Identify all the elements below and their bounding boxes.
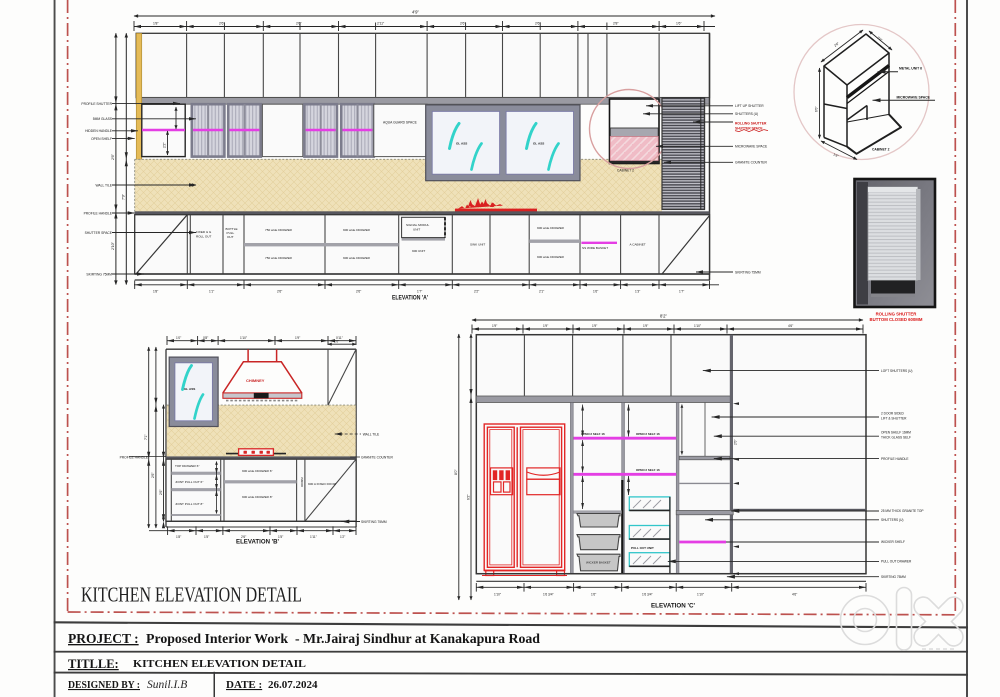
svg-text:WICKER SHELF: WICKER SHELF	[881, 540, 905, 544]
svg-text:WICKER BASKET: WICKER BASKET	[586, 561, 611, 565]
svg-text:GL ASS: GL ASS	[456, 142, 467, 146]
svg-text:SKIRTING 75MM: SKIRTING 75MM	[361, 520, 387, 524]
svg-text:JOINT PULL OUT 8": JOINT PULL OUT 8"	[175, 502, 203, 506]
svg-text:CABINET 2: CABINET 2	[872, 148, 890, 152]
svg-text:HIDDEN HANDLE: HIDDEN HANDLE	[85, 129, 113, 133]
svg-text:2'11": 2'11"	[377, 22, 385, 26]
svg-text:PULL OUT UNIT: PULL OUT UNIT	[631, 546, 654, 550]
svg-text:2'6": 2'6"	[219, 22, 225, 26]
svg-text:1'9": 1'9"	[592, 324, 597, 328]
svg-text:0'8": 0'8"	[203, 336, 208, 340]
svg-text:2'6": 2'6"	[535, 22, 541, 26]
svg-text:WALL TILE: WALL TILE	[95, 183, 112, 187]
svg-text:SIGNAL MODUL: SIGNAL MODUL	[406, 223, 430, 227]
svg-text:1'8": 1'8"	[153, 290, 158, 294]
svg-text:1'10": 1'10"	[694, 324, 701, 328]
svg-text:SKIRTING 75MM: SKIRTING 75MM	[881, 575, 906, 579]
svg-text:25 MM THICK GRANITE TOP: 25 MM THICK GRANITE TOP	[881, 509, 924, 513]
svg-text:1'9": 1'9"	[295, 336, 300, 340]
svg-text:1'10": 1'10"	[240, 336, 247, 340]
svg-text:SKIRTING 75MM: SKIRTING 75MM	[86, 272, 112, 276]
svg-text:AQUA GUARD SPACE: AQUA GUARD SPACE	[383, 121, 418, 125]
svg-text:SHUTTER SPACE: SHUTTER SPACE	[85, 231, 113, 235]
svg-text:2'8": 2'8"	[613, 22, 619, 26]
svg-text:ROLLING SHUTTER: ROLLING SHUTTER	[876, 312, 918, 317]
svg-text:Sunil.I.B: Sunil.I.B	[147, 679, 187, 691]
svg-text:1'10": 1'10"	[494, 592, 501, 596]
svg-text:900 A FIXED DOOR: 900 A FIXED DOOR	[308, 482, 337, 486]
svg-text:900 wide DRAWER 8": 900 wide DRAWER 8"	[242, 495, 273, 499]
svg-text:GRANITE COUNTER: GRANITE COUNTER	[735, 161, 767, 165]
svg-text:1'7": 1'7"	[679, 290, 684, 294]
svg-text:WALL TILE: WALL TILE	[363, 432, 380, 436]
svg-text:4'6": 4'6"	[792, 592, 797, 596]
svg-text:DESIGNED BY :: DESIGNED BY :	[68, 679, 140, 691]
svg-text:2'0": 2'0"	[334, 340, 339, 344]
svg-text:6'0": 6'0"	[815, 106, 819, 112]
svg-text:2'6": 2'6"	[277, 290, 282, 294]
svg-text:SHUTTER SPACE: SHUTTER SPACE	[735, 126, 763, 130]
svg-text:SHUTTERS (U): SHUTTERS (U)	[735, 112, 758, 116]
svg-text:GL ASS: GL ASS	[184, 387, 195, 391]
svg-text:TITLLE:: TITLLE:	[68, 657, 119, 671]
svg-text:1'6 3/4": 1'6 3/4"	[543, 592, 554, 596]
svg-text:2'1": 2'1"	[539, 290, 544, 294]
svg-text:A CABINET: A CABINET	[630, 243, 646, 247]
svg-text:ELEVATION 'C': ELEVATION 'C'	[651, 604, 696, 610]
svg-text:KITCHEN ELEVATION DETAIL: KITCHEN ELEVATION DETAIL	[81, 583, 302, 607]
svg-text:4'6": 4'6"	[788, 324, 793, 328]
svg-text:GRANITE COUNTER: GRANITE COUNTER	[361, 455, 393, 459]
svg-text:1'2": 1'2"	[340, 535, 345, 539]
svg-text:2'6": 2'6"	[241, 535, 246, 539]
svg-text:ROLLING SHUTTER: ROLLING SHUTTER	[735, 121, 767, 125]
svg-text:2'2": 2'2"	[163, 142, 167, 148]
svg-text:1'0": 1'0"	[176, 336, 181, 340]
svg-text:1'5": 1'5"	[204, 535, 209, 539]
svg-text:1'3": 1'3"	[635, 290, 640, 294]
svg-text:MICROWAVE SPACE: MICROWAVE SPACE	[735, 145, 768, 149]
svg-text:1'5": 1'5"	[278, 535, 283, 539]
svg-text:750 wide DRAWER: 750 wide DRAWER	[265, 256, 293, 260]
svg-text:26.07.2024: 26.07.2024	[268, 679, 318, 691]
svg-text:SHUTTERS (U): SHUTTERS (U)	[881, 518, 904, 522]
svg-text:1'1": 1'1"	[209, 290, 214, 294]
svg-text:2'6": 2'6"	[356, 290, 361, 294]
svg-text:7'1": 7'1"	[144, 434, 148, 440]
svg-text:2 DOOR SIDED: 2 DOOR SIDED	[881, 412, 905, 416]
svg-text:900 wide DRAWER: 900 wide DRAWER	[537, 255, 565, 259]
svg-text:1'10": 1'10"	[697, 592, 704, 596]
svg-text:900 wide DRAWER: 900 wide DRAWER	[343, 256, 371, 260]
svg-text:KITCHEN ELEVATION DETAIL: KITCHEN ELEVATION DETAIL	[133, 659, 306, 670]
svg-text:TOP DRAWER 6": TOP DRAWER 6"	[175, 464, 199, 468]
svg-text:1'8": 1'8"	[176, 535, 181, 539]
svg-text:2'6": 2'6"	[460, 22, 466, 26]
svg-text:ELEVATION 'B': ELEVATION 'B'	[236, 540, 280, 546]
svg-text:7'9": 7'9"	[122, 193, 126, 200]
svg-text:PROFILE SHUTTER: PROFILE SHUTTER	[81, 102, 112, 106]
svg-text:CHIMNEY: CHIMNEY	[246, 378, 265, 383]
svg-text:Proposed Interior Work - Mr.J: Proposed Interior Work - Mr.Jairaj Sindh…	[146, 631, 540, 646]
svg-text:OPEN 2 SELF 16: OPEN 2 SELF 16	[636, 468, 660, 472]
svg-text:METAL UNIT 6: METAL UNIT 6	[899, 67, 922, 71]
svg-text:4'9": 4'9"	[412, 10, 419, 15]
svg-text:FIXED & G: FIXED & G	[196, 230, 212, 234]
svg-text:MICROWAVE SPACE: MICROWAVE SPACE	[897, 96, 931, 100]
svg-text:5MM GLASS: 5MM GLASS	[93, 117, 113, 121]
svg-text:8'2": 8'2"	[660, 314, 667, 319]
svg-text:1'8": 1'8"	[153, 22, 159, 26]
svg-text:LIFT UP SHUTTER: LIFT UP SHUTTER	[735, 104, 764, 108]
svg-text:BUTTOM CLOSED 600MM: BUTTOM CLOSED 600MM	[870, 317, 923, 322]
svg-text:SINK UNIT: SINK UNIT	[470, 243, 485, 247]
svg-text:THICK GLASS SELF: THICK GLASS SELF	[881, 435, 911, 439]
svg-text:SS WIRE BASKET: SS WIRE BASKET	[582, 246, 608, 250]
svg-text:OPEN 2 SELF 16: OPEN 2 SELF 16	[636, 432, 660, 436]
svg-text:PROJECT :: PROJECT :	[68, 631, 139, 646]
svg-text:PROFILE HANDLE: PROFILE HANDLE	[881, 457, 908, 461]
svg-text:6'2": 6'2"	[466, 494, 470, 500]
svg-text:900MM: 900MM	[300, 477, 304, 487]
svg-text:1'6": 1'6"	[676, 22, 682, 26]
svg-text:UNIT: UNIT	[413, 228, 420, 232]
svg-text:1'11": 1'11"	[310, 535, 317, 539]
svg-text:1'7": 1'7"	[417, 290, 422, 294]
svg-text:2'6": 2'6"	[159, 489, 163, 495]
svg-text:DATE :: DATE :	[226, 679, 262, 691]
svg-text:2'2": 2'2"	[474, 290, 479, 294]
svg-text:1'6": 1'6"	[591, 592, 596, 596]
svg-text:2'6": 2'6"	[151, 472, 155, 478]
svg-text:SKIRTING 75MM: SKIRTING 75MM	[735, 270, 761, 274]
svg-text:GL ASS: GL ASS	[533, 142, 544, 146]
svg-text:PULL OUT DRAWER: PULL OUT DRAWER	[881, 560, 912, 564]
svg-text:OPEN 2 SELF 16: OPEN 2 SELF 16	[581, 432, 605, 436]
svg-text:ROLL OUT: ROLL OUT	[196, 235, 211, 239]
svg-text:900 wide DRAWER: 900 wide DRAWER	[343, 228, 371, 232]
svg-text:1'9": 1'9"	[643, 324, 648, 328]
svg-text:LOFT SHUTTERS (U): LOFT SHUTTERS (U)	[881, 369, 912, 373]
svg-text:1'9": 1'9"	[543, 324, 548, 328]
svg-text:2'10": 2'10"	[111, 241, 115, 250]
svg-text:750 wide DRAWER: 750 wide DRAWER	[265, 228, 293, 232]
svg-text:2'6": 2'6"	[833, 41, 840, 48]
svg-text:PROFILE HANDLE: PROFILE HANDLE	[84, 211, 113, 215]
svg-text:1'6": 1'6"	[833, 152, 840, 158]
svg-text:2'0": 2'0"	[734, 439, 738, 445]
svg-text:ELEVATION 'A': ELEVATION 'A'	[392, 296, 428, 302]
svg-text:OUT: OUT	[227, 235, 234, 239]
svg-text:OPEN SHELF 16MM: OPEN SHELF 16MM	[881, 430, 911, 434]
svg-text:8'0": 8'0"	[454, 469, 458, 475]
svg-text:2'6": 2'6"	[111, 153, 115, 160]
svg-text:OPEN SHELF: OPEN SHELF	[91, 137, 112, 141]
svg-text:900 wide DRAWER 6": 900 wide DRAWER 6"	[242, 469, 273, 473]
svg-text:1'6 3/4": 1'6 3/4"	[642, 592, 653, 596]
svg-text:2'6": 2'6"	[296, 22, 302, 26]
svg-text:1'6": 1'6"	[593, 290, 598, 294]
svg-text:JOINT PULL OUT 6": JOINT PULL OUT 6"	[175, 480, 203, 484]
svg-text:900 UNIT: 900 UNIT	[412, 249, 425, 253]
svg-text:900 wide DRAWER: 900 wide DRAWER	[537, 226, 565, 230]
svg-text:1'9": 1'9"	[492, 324, 497, 328]
svg-text:LIFT & SHUTTER: LIFT & SHUTTER	[881, 417, 907, 421]
